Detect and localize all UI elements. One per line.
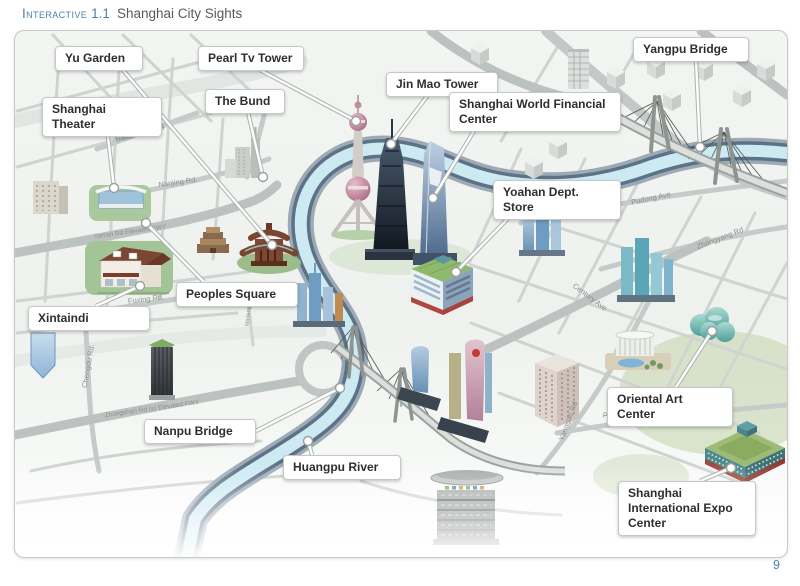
figure-header: Interactive1.1Shanghai City Sights bbox=[22, 6, 242, 21]
callout-label: Huangpu River bbox=[293, 460, 378, 474]
nanpu-bridge-illustration bbox=[331, 327, 565, 471]
callout-nanpu-bridge[interactable]: Nanpu Bridge bbox=[144, 419, 256, 444]
pudong-tower-cluster-b-illustration bbox=[617, 238, 675, 302]
callout-label: Oriental Art Center bbox=[617, 392, 683, 421]
callout-label: Shanghai World Financial Center bbox=[459, 97, 605, 126]
callout-the-bund[interactable]: The Bund bbox=[205, 89, 285, 114]
callout-huangpu-river[interactable]: Huangpu River bbox=[283, 455, 401, 480]
xintiandi-house-illustration bbox=[85, 241, 173, 295]
callout-shanghai-world-financial-center[interactable]: Shanghai World Financial Center bbox=[449, 92, 621, 132]
callout-label: Nanpu Bridge bbox=[154, 424, 233, 438]
callout-yoahan-dept-store[interactable]: Yoahan Dept. Store bbox=[493, 180, 621, 220]
callout-yu-garden[interactable]: Yu Garden bbox=[55, 46, 143, 71]
callout-label: Pearl Tv Tower bbox=[208, 51, 292, 65]
callout-pearl-tv-tower[interactable]: Pearl Tv Tower bbox=[198, 46, 304, 71]
museum-stack-illustration bbox=[197, 227, 229, 253]
callout-label: Yu Garden bbox=[65, 51, 125, 65]
curved-tower-trio-illustration bbox=[397, 339, 492, 443]
page-number: 9 bbox=[756, 558, 780, 572]
callout-label: Shanghai International Expo Center bbox=[628, 486, 733, 530]
callout-label: The Bund bbox=[215, 94, 270, 108]
callout-shanghai-international-expo-center[interactable]: Shanghai International Expo Center bbox=[618, 481, 756, 536]
left-office-building-illustration bbox=[33, 181, 68, 214]
callout-xintaindi[interactable]: Xintaindi bbox=[28, 306, 150, 331]
callout-label: Yoahan Dept. Store bbox=[503, 185, 579, 214]
bund-buildings-illustration bbox=[225, 127, 260, 178]
callout-yangpu-bridge[interactable]: Yangpu Bridge bbox=[633, 37, 749, 62]
blue-pin-shape bbox=[31, 333, 55, 378]
checker-tower-illustration bbox=[568, 49, 589, 89]
callout-label: Shanghai Theater bbox=[52, 102, 106, 131]
callout-label: Jin Mao Tower bbox=[396, 77, 478, 91]
figure-number: 1.1 bbox=[91, 6, 110, 21]
figure-kicker: Interactive bbox=[22, 6, 87, 21]
callout-peoples-square[interactable]: Peoples Square bbox=[176, 282, 298, 307]
dark-tower-green-roof-illustration bbox=[149, 339, 175, 400]
callout-oriental-art-center[interactable]: Oriental Art Center bbox=[607, 387, 733, 427]
low-rise-building-illustration bbox=[535, 354, 579, 427]
figure-title: Shanghai City Sights bbox=[117, 6, 242, 21]
callout-label: Peoples Square bbox=[186, 287, 276, 301]
callout-label: Yangpu Bridge bbox=[643, 42, 728, 56]
callout-label: Xintaindi bbox=[38, 311, 89, 325]
shanghai-grand-theatre-illustration bbox=[89, 185, 151, 221]
ebook-page: Interactive1.1Shanghai City Sights bbox=[0, 0, 800, 586]
callout-shanghai-theater[interactable]: Shanghai Theater bbox=[42, 97, 162, 137]
